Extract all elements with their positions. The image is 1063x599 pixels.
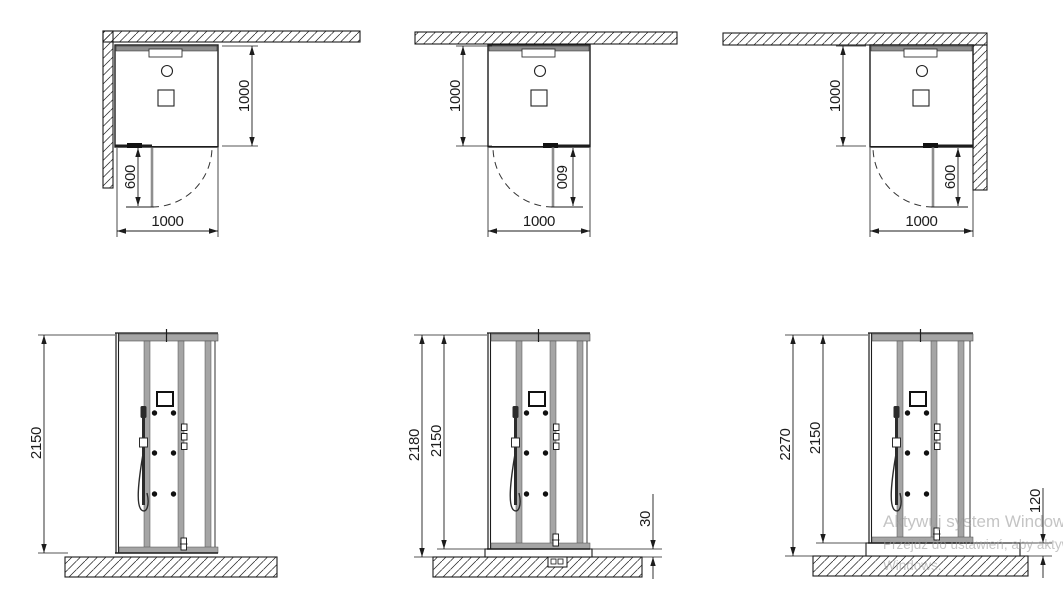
drain-square xyxy=(158,90,174,106)
drain-square xyxy=(913,90,929,106)
dimension-label: 1000 xyxy=(827,80,844,112)
frame-post xyxy=(205,341,211,553)
top-rail xyxy=(491,334,590,341)
water-connection xyxy=(552,534,560,546)
shower-cabin-technical-drawing: 1000600100010006001000100060010002150218… xyxy=(0,0,1063,599)
dimension-label: 2180 xyxy=(406,429,423,461)
dimension-label: 1000 xyxy=(523,213,555,230)
control-panel xyxy=(910,392,926,406)
bottom-rail xyxy=(872,537,973,543)
dimension-label: 600 xyxy=(553,165,570,189)
wall-hatch xyxy=(415,32,677,44)
dimension-label: 1000 xyxy=(447,80,464,112)
steam-unit xyxy=(149,49,182,57)
dimension-label: 1000 xyxy=(905,213,937,230)
dimension-label: 2150 xyxy=(807,422,824,454)
door-pivot xyxy=(127,143,142,148)
dimension-label: 30 xyxy=(637,511,654,527)
steam-unit xyxy=(904,49,937,57)
dimension-label: 2150 xyxy=(28,427,45,459)
door-pivot xyxy=(923,143,938,148)
water-connection xyxy=(933,528,941,540)
top-rail xyxy=(872,334,973,341)
drain-square xyxy=(531,90,547,106)
shower-tray xyxy=(485,549,592,557)
top-rail xyxy=(119,334,218,341)
drain-circle xyxy=(917,66,928,77)
wall-hatch xyxy=(973,45,987,190)
dimension-label: 120 xyxy=(1027,489,1044,513)
water-connection xyxy=(180,538,188,550)
drain-circle xyxy=(162,66,173,77)
dimension-label: 600 xyxy=(122,165,139,189)
floor-hatch xyxy=(65,557,277,577)
bottom-rail xyxy=(119,547,218,553)
wall-hatch xyxy=(723,33,987,45)
mixer-knobs xyxy=(182,424,188,450)
wall-hatch xyxy=(103,31,113,188)
drain-circle xyxy=(535,66,546,77)
dimension-label: 600 xyxy=(942,165,959,189)
dimension-label: 1000 xyxy=(151,213,183,230)
mixer-knobs xyxy=(935,424,941,450)
steam-unit xyxy=(522,49,555,57)
frame-post xyxy=(577,341,583,549)
bottom-rail xyxy=(491,543,590,549)
dimension-label: 1000 xyxy=(236,80,253,112)
dimension-label: 2150 xyxy=(428,425,445,457)
frame-post xyxy=(931,341,937,543)
control-panel xyxy=(157,392,173,406)
drawing-canvas: 1000600100010006001000100060010002150218… xyxy=(0,0,1063,599)
control-panel xyxy=(529,392,545,406)
dimension-label: 2270 xyxy=(777,428,794,460)
floor-drain xyxy=(548,557,567,567)
door-pivot xyxy=(543,143,558,148)
mixer-knobs xyxy=(554,424,560,450)
floor-hatch xyxy=(813,556,1028,576)
frame-post xyxy=(958,341,964,543)
wall-hatch xyxy=(103,31,360,42)
floor-hatch xyxy=(433,557,642,577)
shower-tray xyxy=(866,543,1020,556)
